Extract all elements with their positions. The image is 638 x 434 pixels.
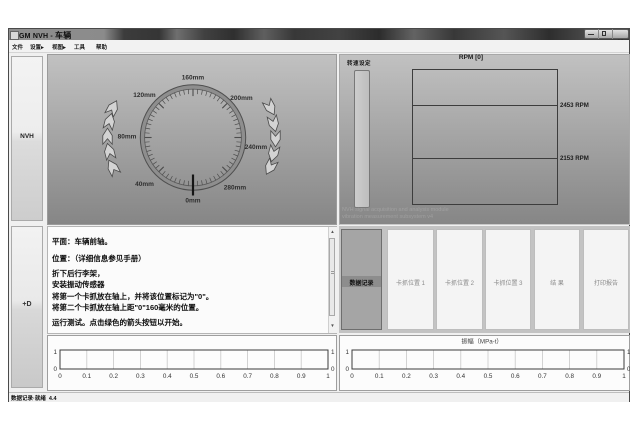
svg-text:0.7: 0.7 (538, 373, 547, 380)
svg-text:0.1: 0.1 (375, 373, 384, 380)
svg-text:1: 1 (622, 373, 626, 380)
svg-text:1: 1 (53, 349, 57, 356)
svg-text:0.4: 0.4 (163, 373, 172, 380)
svg-text:0.1: 0.1 (82, 373, 91, 380)
svg-text:1: 1 (345, 349, 349, 356)
svg-text:1: 1 (627, 349, 630, 356)
svg-text:0.5: 0.5 (190, 373, 199, 380)
svg-text:0: 0 (53, 366, 57, 373)
svg-text:280mm: 280mm (224, 185, 247, 192)
svg-text:120mm: 120mm (133, 92, 156, 99)
svg-text:1: 1 (326, 373, 330, 380)
svg-text:0.5: 0.5 (484, 373, 493, 380)
svg-text:160mm: 160mm (182, 75, 205, 82)
svg-text:0.9: 0.9 (297, 373, 306, 380)
svg-text:240mm: 240mm (245, 144, 268, 151)
svg-text:0: 0 (627, 366, 630, 373)
svg-text:0.8: 0.8 (565, 373, 574, 380)
svg-text:0mm: 0mm (185, 198, 200, 205)
svg-text:0.7: 0.7 (243, 373, 252, 380)
svg-text:0.3: 0.3 (429, 373, 438, 380)
svg-text:振幅（MPa-t）: 振幅（MPa-t） (461, 338, 502, 346)
svg-text:0.2: 0.2 (109, 373, 118, 380)
svg-text:0.2: 0.2 (402, 373, 411, 380)
svg-text:200mm: 200mm (230, 95, 253, 102)
svg-text:80mm: 80mm (118, 134, 137, 141)
svg-text:0.6: 0.6 (216, 373, 225, 380)
svg-text:0.4: 0.4 (456, 373, 465, 380)
svg-text:0.6: 0.6 (511, 373, 520, 380)
svg-text:40mm: 40mm (135, 181, 154, 188)
svg-text:0: 0 (345, 366, 349, 373)
svg-text:0.9: 0.9 (592, 373, 601, 380)
svg-text:1: 1 (331, 349, 335, 356)
svg-text:0: 0 (58, 373, 62, 380)
svg-text:0: 0 (331, 366, 335, 373)
svg-text:0.3: 0.3 (136, 373, 145, 380)
svg-text:0.8: 0.8 (270, 373, 279, 380)
svg-text:0: 0 (350, 373, 354, 380)
